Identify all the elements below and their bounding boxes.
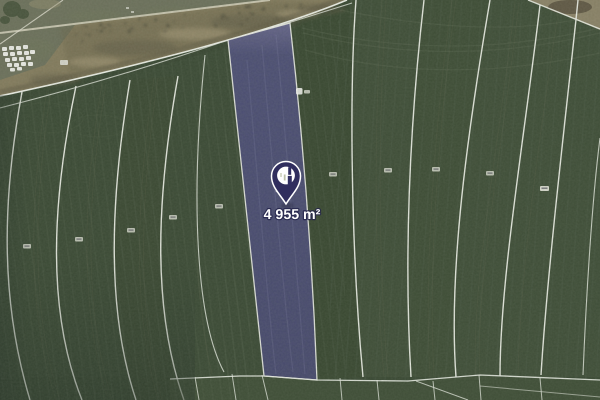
svg-text:4 955 m²: 4 955 m² [264, 207, 321, 223]
